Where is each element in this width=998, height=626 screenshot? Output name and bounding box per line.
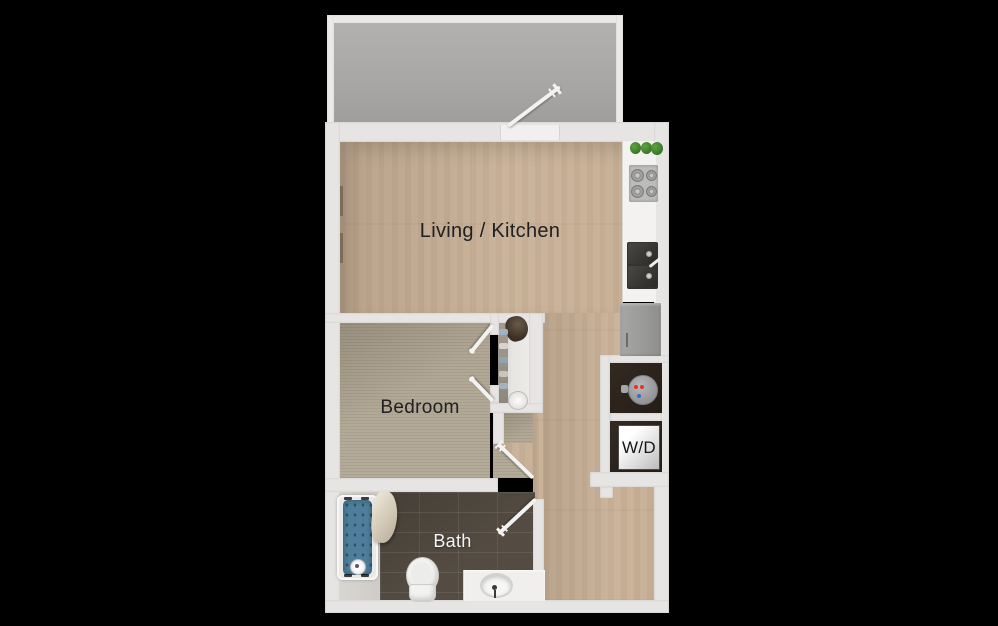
sink-drain (646, 251, 652, 257)
wall-heater-wd-divider (610, 413, 662, 421)
tub-grab-bar (361, 574, 369, 577)
stove-cooktop (629, 165, 658, 202)
refrigerator (620, 303, 661, 356)
closet-shoes (499, 343, 508, 349)
washer-dryer-unit: W/D (618, 425, 660, 470)
wall-heater-left (600, 355, 610, 486)
tub-grab-bar (361, 497, 369, 500)
bedroom-label: Bedroom (350, 398, 490, 417)
wd-label: W/D (619, 426, 659, 469)
wall-closet-right (529, 313, 543, 413)
tub-grab-bar (344, 497, 352, 500)
wall-bottom (325, 600, 669, 613)
refrigerator-handle (626, 333, 628, 347)
heater-hot-dot (634, 385, 638, 389)
heater-cold-dot (637, 394, 641, 398)
floorplan: W/D (0, 0, 998, 626)
stove-burner (631, 185, 644, 198)
balcony-wall-top (327, 15, 623, 23)
tub-drain (355, 564, 359, 568)
kitchen-sink (627, 242, 658, 289)
wall-top (325, 122, 669, 142)
wall-wd-bottom (590, 472, 669, 487)
washer-dryer-closet: W/D (610, 421, 662, 472)
laundry-basket (508, 391, 528, 410)
plant-icon (651, 142, 663, 155)
balcony-floor (334, 23, 616, 130)
sink-basin (628, 266, 657, 287)
balcony-wall-right (616, 15, 623, 130)
living-kitchen-label: Living / Kitchen (380, 221, 600, 241)
tub-grab-bar (344, 574, 352, 577)
closet-shoes (499, 357, 508, 363)
balcony-wall-left (327, 15, 334, 130)
wall-entry-stub (600, 487, 613, 498)
baseboard-mark (340, 233, 343, 263)
water-heater (628, 375, 658, 405)
heater-hot-dot (640, 385, 644, 389)
closet-shoes (499, 383, 508, 389)
closet-shoes (499, 371, 508, 377)
plant-icon (630, 142, 641, 154)
closet-shoes (499, 329, 508, 335)
water-heater-pipe (621, 385, 628, 393)
bath-vanity (463, 570, 545, 601)
stove-burner (631, 169, 644, 182)
door-hinge-icon (499, 445, 506, 452)
sink-drain (646, 273, 652, 279)
baseboard-mark (340, 186, 343, 216)
wall-bedroom-door-stub (493, 412, 504, 444)
water-heater-closet (610, 363, 662, 413)
stove-burner (646, 170, 657, 181)
wall-heater-top (600, 355, 669, 363)
wall-bath-right (533, 499, 544, 575)
sink-faucet-stem (494, 590, 496, 598)
wall-bedroom-bath (325, 478, 498, 492)
toilet-base (409, 584, 436, 602)
bath-label: Bath (410, 532, 495, 550)
stove-burner (646, 186, 657, 197)
